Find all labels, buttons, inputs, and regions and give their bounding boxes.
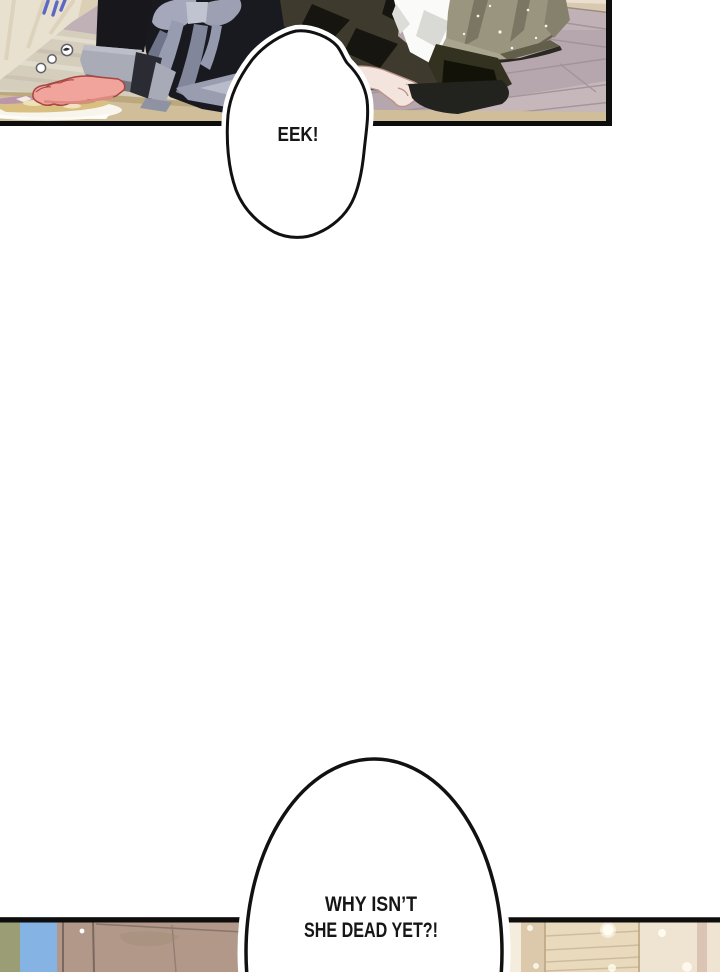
svg-text:SHE DEAD YET?!: SHE DEAD YET?!	[304, 919, 438, 942]
svg-text:WHY ISN’T: WHY ISN’T	[325, 893, 417, 916]
svg-text:EEK!: EEK!	[278, 124, 319, 146]
